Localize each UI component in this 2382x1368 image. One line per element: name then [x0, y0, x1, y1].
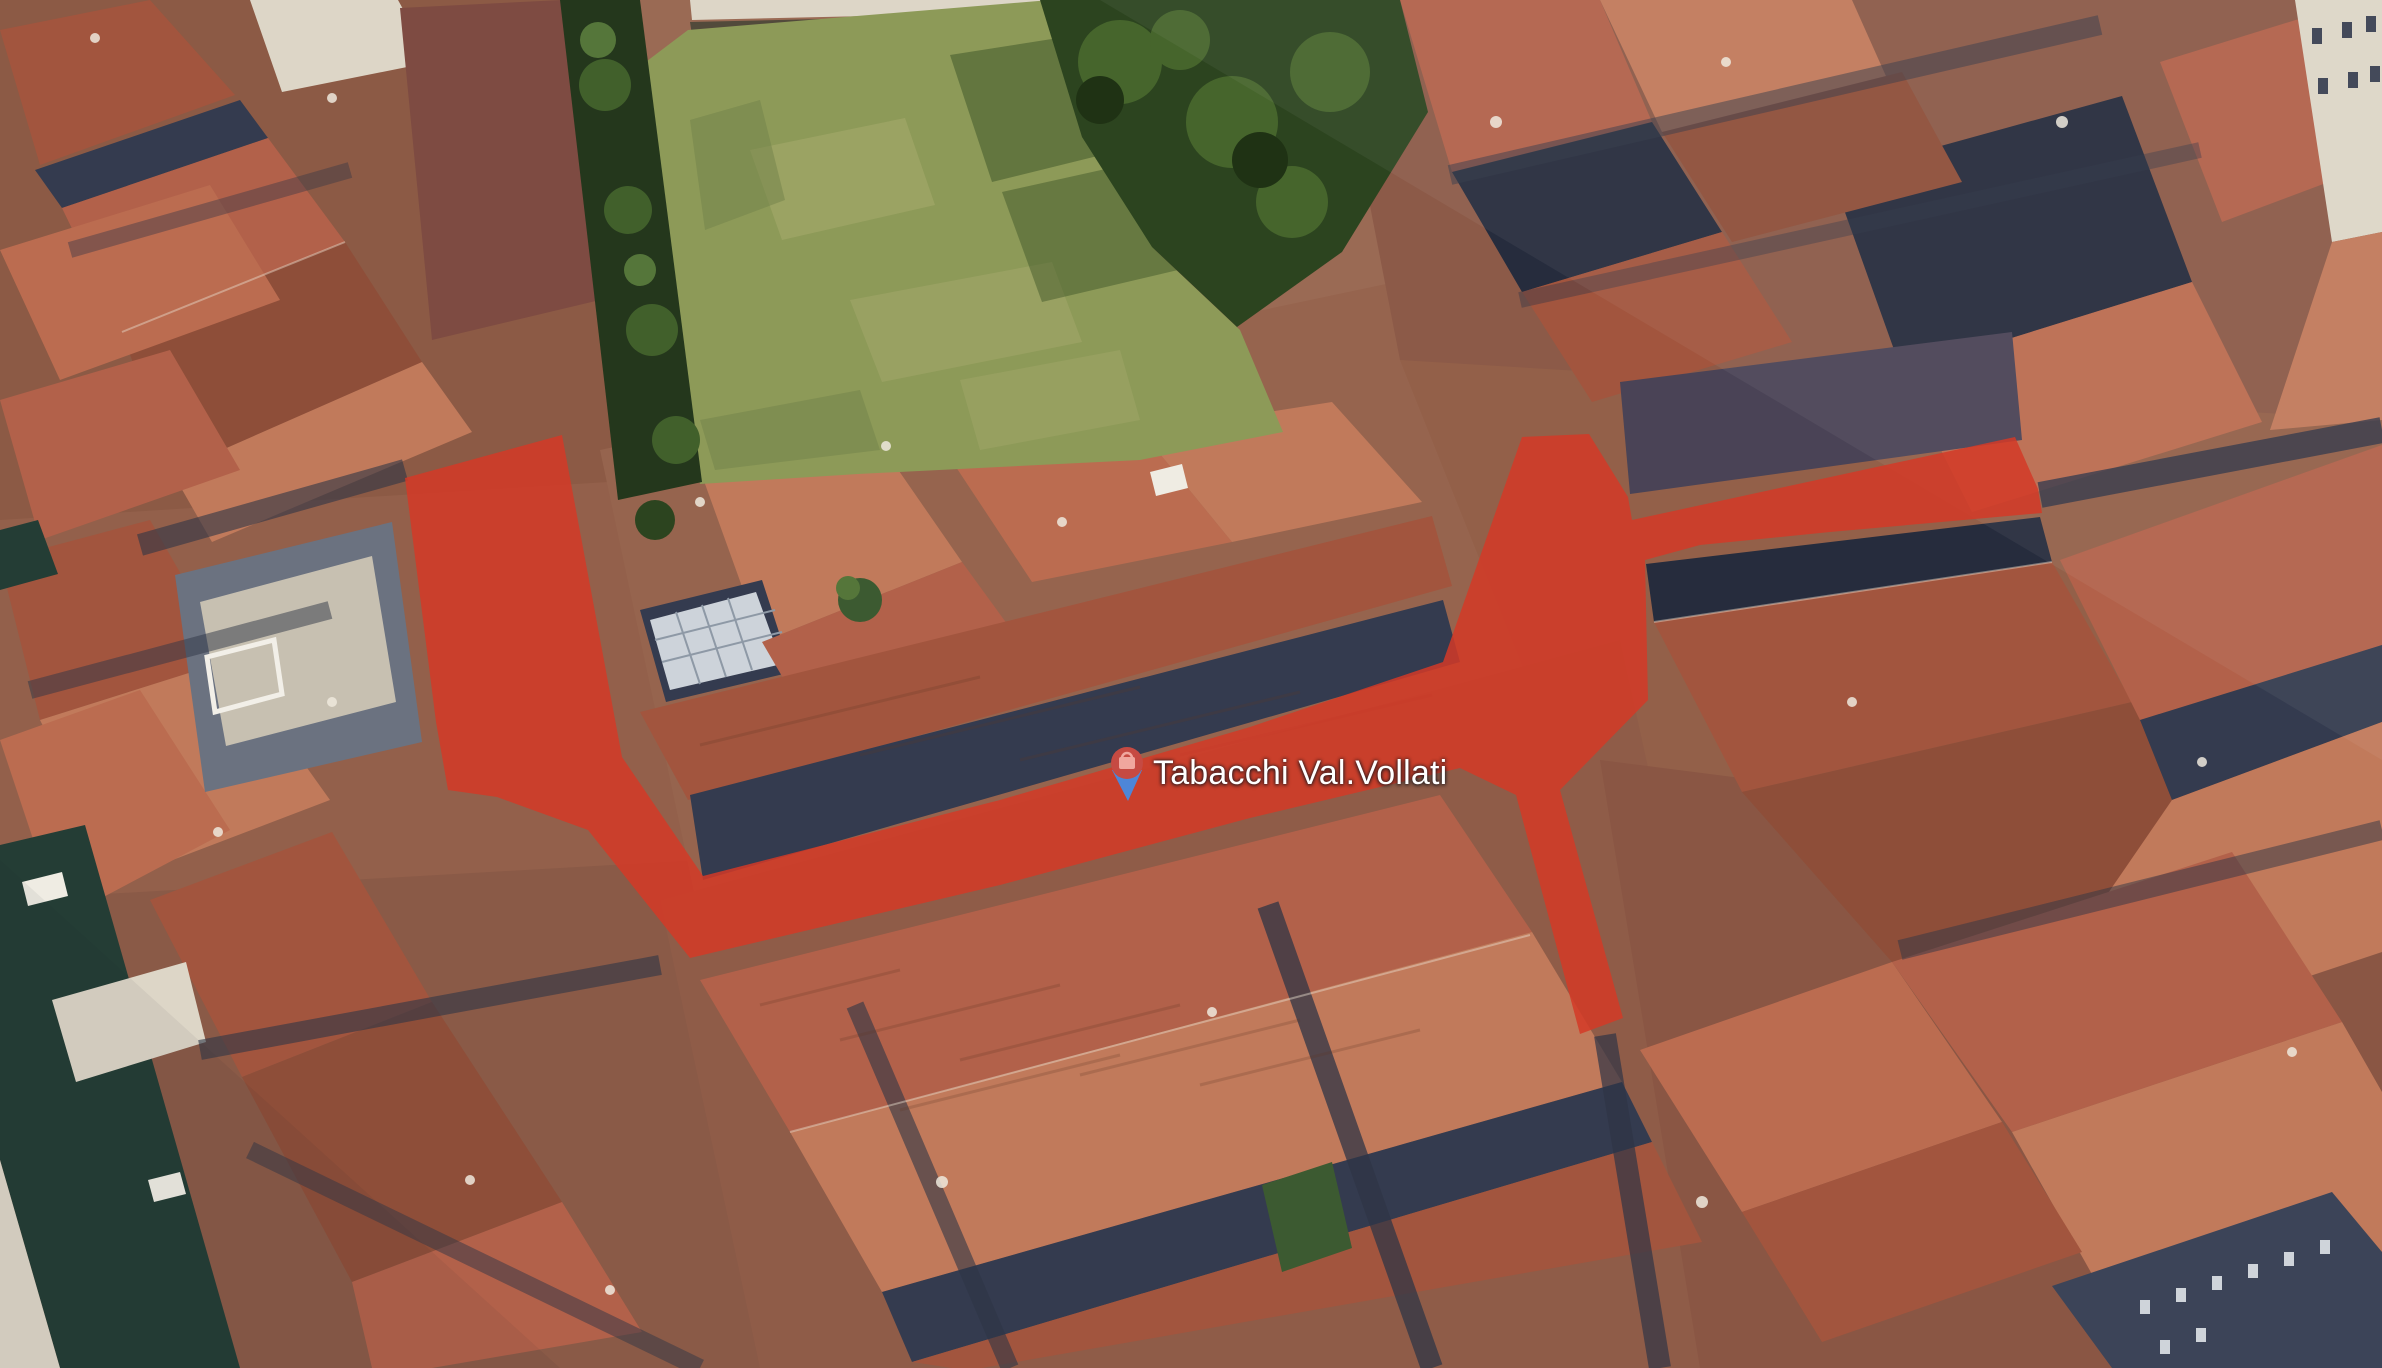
city-blocks-shape: [2196, 1328, 2206, 1342]
green-field-shape: [579, 59, 631, 111]
chimneys-shape: [695, 497, 705, 507]
city-blocks-shape: [2320, 1240, 2330, 1254]
chimneys-shape: [465, 1175, 475, 1185]
green-field-shape: [624, 254, 656, 286]
chimneys-shape: [2287, 1047, 2297, 1057]
satellite-imagery: Tabacchi Val.Vollati: [0, 0, 2382, 1368]
chimneys-shape: [1696, 1196, 1708, 1208]
chimneys-shape: [1847, 697, 1857, 707]
green-field-shape: [652, 416, 700, 464]
city-blocks-shape: [2284, 1252, 2294, 1266]
chimneys-shape: [213, 827, 223, 837]
city-blocks-shape: [2212, 1276, 2222, 1290]
city-blocks-shape: [2140, 1300, 2150, 1314]
green-field-shape: [604, 186, 652, 234]
chimneys-shape: [1207, 1007, 1217, 1017]
poi-label[interactable]: Tabacchi Val.Vollati: [1153, 754, 1447, 792]
chimneys-shape: [327, 93, 337, 103]
green-field-shape: [1076, 76, 1124, 124]
chimneys-shape: [2197, 757, 2207, 767]
shopping-bag-icon: [1119, 757, 1135, 769]
city-blocks-shape: [2248, 1264, 2258, 1278]
chimneys-shape: [881, 441, 891, 451]
green-field-shape: [580, 22, 616, 58]
chimneys-shape: [327, 697, 337, 707]
city-blocks-shape: [2176, 1288, 2186, 1302]
chimneys-shape: [936, 1176, 948, 1188]
chimneys-shape: [605, 1285, 615, 1295]
small-tree: [635, 500, 675, 540]
green-field-shape: [626, 304, 678, 356]
chimneys-shape: [90, 33, 100, 43]
city-blocks-shape: [2160, 1340, 2170, 1354]
green-field-shape: [836, 576, 860, 600]
aerial-map-view[interactable]: Tabacchi Val.Vollati: [0, 0, 2382, 1368]
chimneys-shape: [1057, 517, 1067, 527]
green-field-shape: [1232, 132, 1288, 188]
